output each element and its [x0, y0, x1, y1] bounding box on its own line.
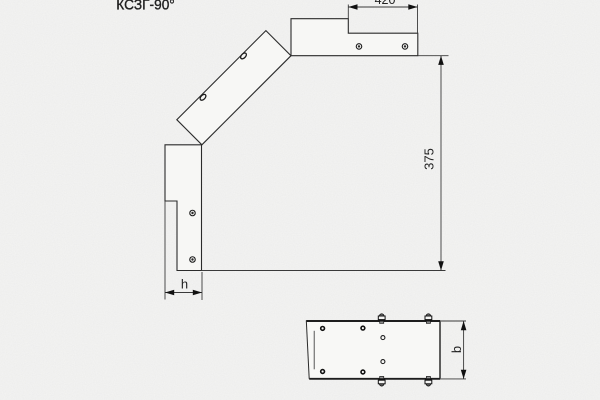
svg-text:КСЗГ-90°: КСЗГ-90°	[116, 0, 175, 14]
svg-text:420: 420	[375, 0, 396, 7]
svg-text:h: h	[181, 277, 188, 292]
svg-text:b: b	[449, 346, 464, 353]
svg-text:375: 375	[422, 148, 437, 170]
